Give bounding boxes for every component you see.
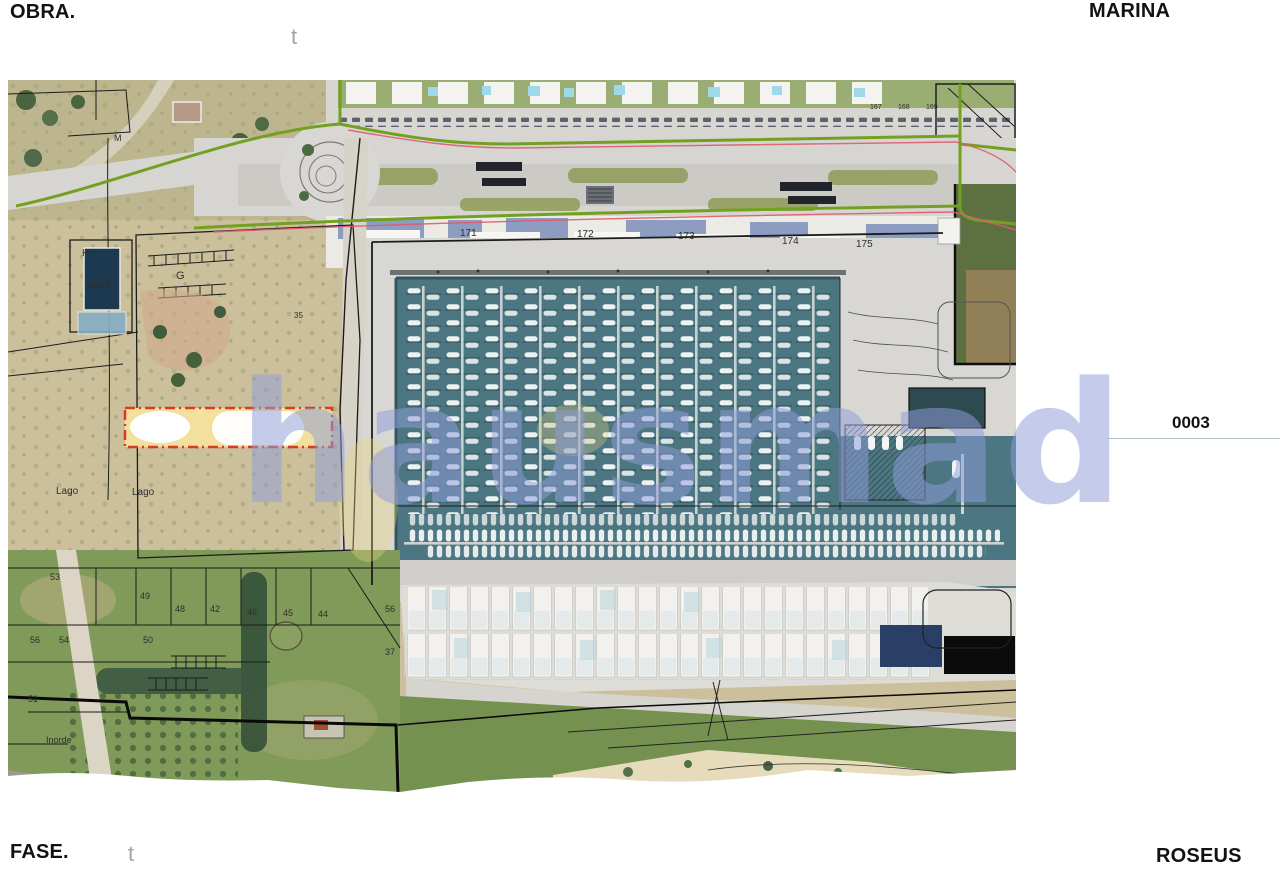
parcel-50: 50 (143, 635, 153, 645)
sheet-number: 0003 (1172, 413, 1210, 433)
zone-label-g: G (176, 270, 185, 282)
lago-label-1: Lago (56, 486, 79, 497)
parcel-56-right: 56 (385, 604, 395, 614)
parcel-45: 45 (283, 608, 293, 618)
street-number-167: 167 (870, 104, 882, 111)
pool-label-174: 174 (782, 236, 799, 247)
lago-label-2: Lago (132, 487, 155, 498)
building-label-bear: BEAR (88, 281, 111, 290)
pool-label-171: 171 (460, 228, 477, 239)
parcel-53: 53 (50, 572, 60, 582)
parcel-49: 49 (140, 591, 150, 601)
sheet-number-underline (1108, 438, 1280, 439)
parcel-37: 37 (385, 647, 395, 657)
parcel-48: 48 (175, 604, 185, 614)
parcel-54: 54 (59, 635, 69, 645)
zone-label-h: H (82, 248, 89, 259)
street-number-169: 169 (926, 104, 938, 111)
zone-label-35: 35 (294, 311, 303, 320)
pool-label-175: 175 (856, 239, 873, 250)
fields-parcels (8, 550, 400, 792)
obra-value: MARINA (1089, 0, 1170, 23)
parcel-46: 46 (247, 607, 257, 617)
fase-label: FASE. (10, 841, 69, 864)
parcel-42: 42 (210, 604, 220, 614)
parcel-44: 44 (318, 609, 328, 619)
zone-label-m: M (114, 133, 122, 143)
aerial-photo-map: 171 172 173 174 175 167 168 169 BEAR H G… (8, 80, 1016, 792)
parcel-56-left: 56 (30, 635, 40, 645)
inorde-label: Inorde (46, 735, 72, 745)
drawing-sheet: OBRA. t MARINA 0003 FASE. t ROSEUS (0, 0, 1280, 874)
parcel-51: 51 (28, 694, 38, 704)
obra-label: OBRA. (10, 1, 75, 24)
template-mark-bottom: t (128, 841, 134, 867)
template-mark-top: t (291, 24, 297, 50)
street-number-168: 168 (898, 104, 910, 111)
pool-label-172: 172 (577, 229, 594, 240)
fase-value: ROSEUS (1156, 845, 1242, 868)
pool-label-173: 173 (678, 231, 695, 242)
